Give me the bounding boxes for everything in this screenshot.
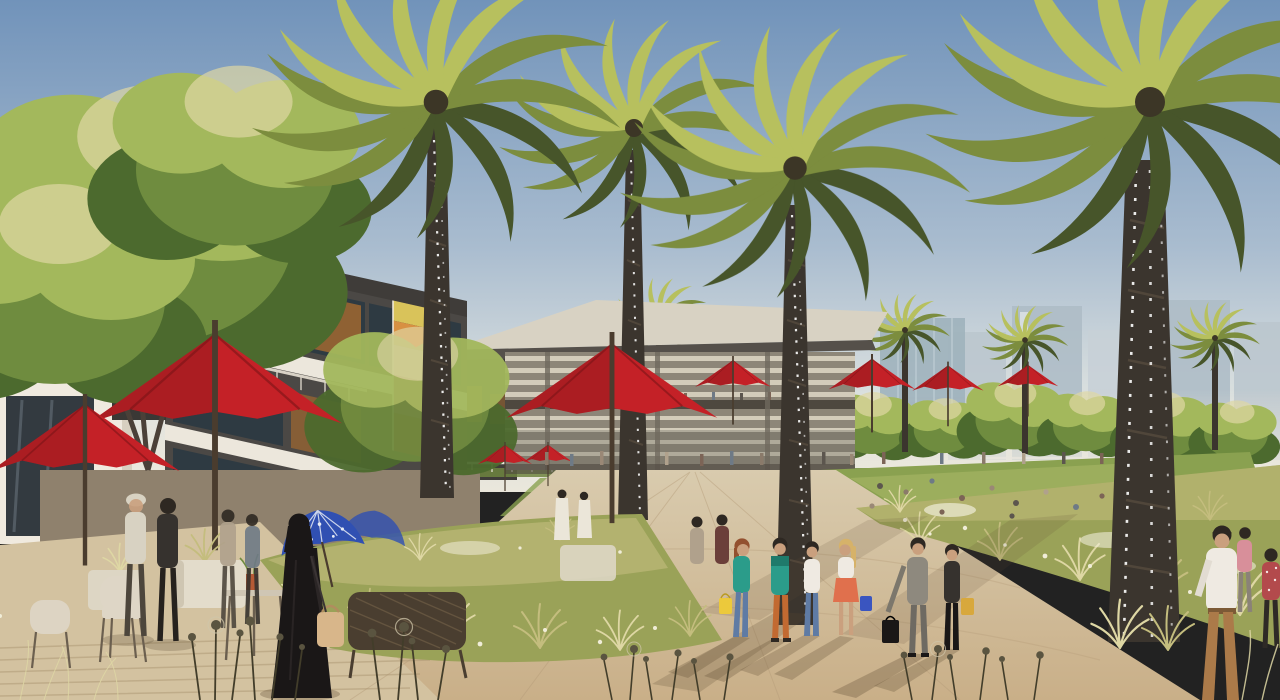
blue-shopping-bag xyxy=(860,596,872,611)
plaza-rendering xyxy=(0,0,1280,700)
mustard-bag xyxy=(961,598,974,615)
plaza-scene-canvas xyxy=(0,0,1280,700)
briefcase xyxy=(882,620,899,643)
white-shirt xyxy=(1206,548,1237,612)
yellow-shopping-bag xyxy=(719,598,732,614)
tan-handbag xyxy=(317,612,344,647)
